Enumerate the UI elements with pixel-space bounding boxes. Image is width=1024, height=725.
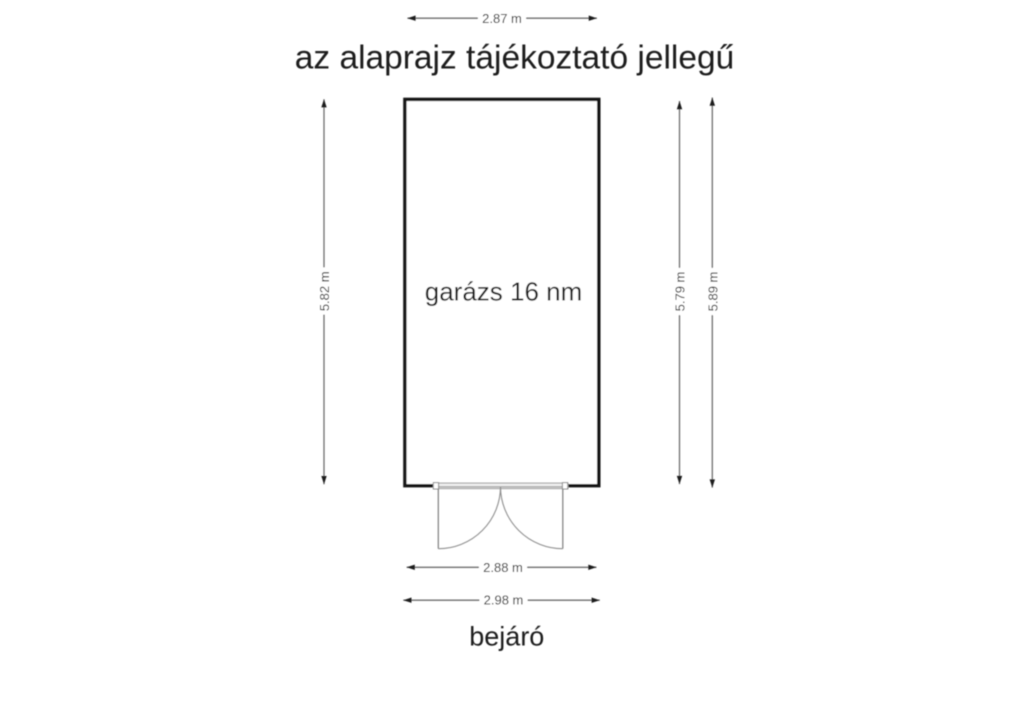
svg-text:2.98 m: 2.98 m [484, 593, 524, 608]
svg-text:5.79 m: 5.79 m [673, 272, 688, 312]
svg-text:5.82 m: 5.82 m [317, 271, 332, 311]
svg-text:2.87 m: 2.87 m [482, 11, 522, 26]
svg-text:2.88 m: 2.88 m [483, 560, 523, 575]
svg-text:garázs 16 nm: garázs 16 nm [425, 277, 583, 307]
svg-text:az alaprajz tájékoztató jelleg: az alaprajz tájékoztató jellegű [295, 40, 735, 77]
svg-text:5.89 m: 5.89 m [705, 272, 720, 312]
svg-text:bejáró: bejáró [469, 622, 544, 652]
